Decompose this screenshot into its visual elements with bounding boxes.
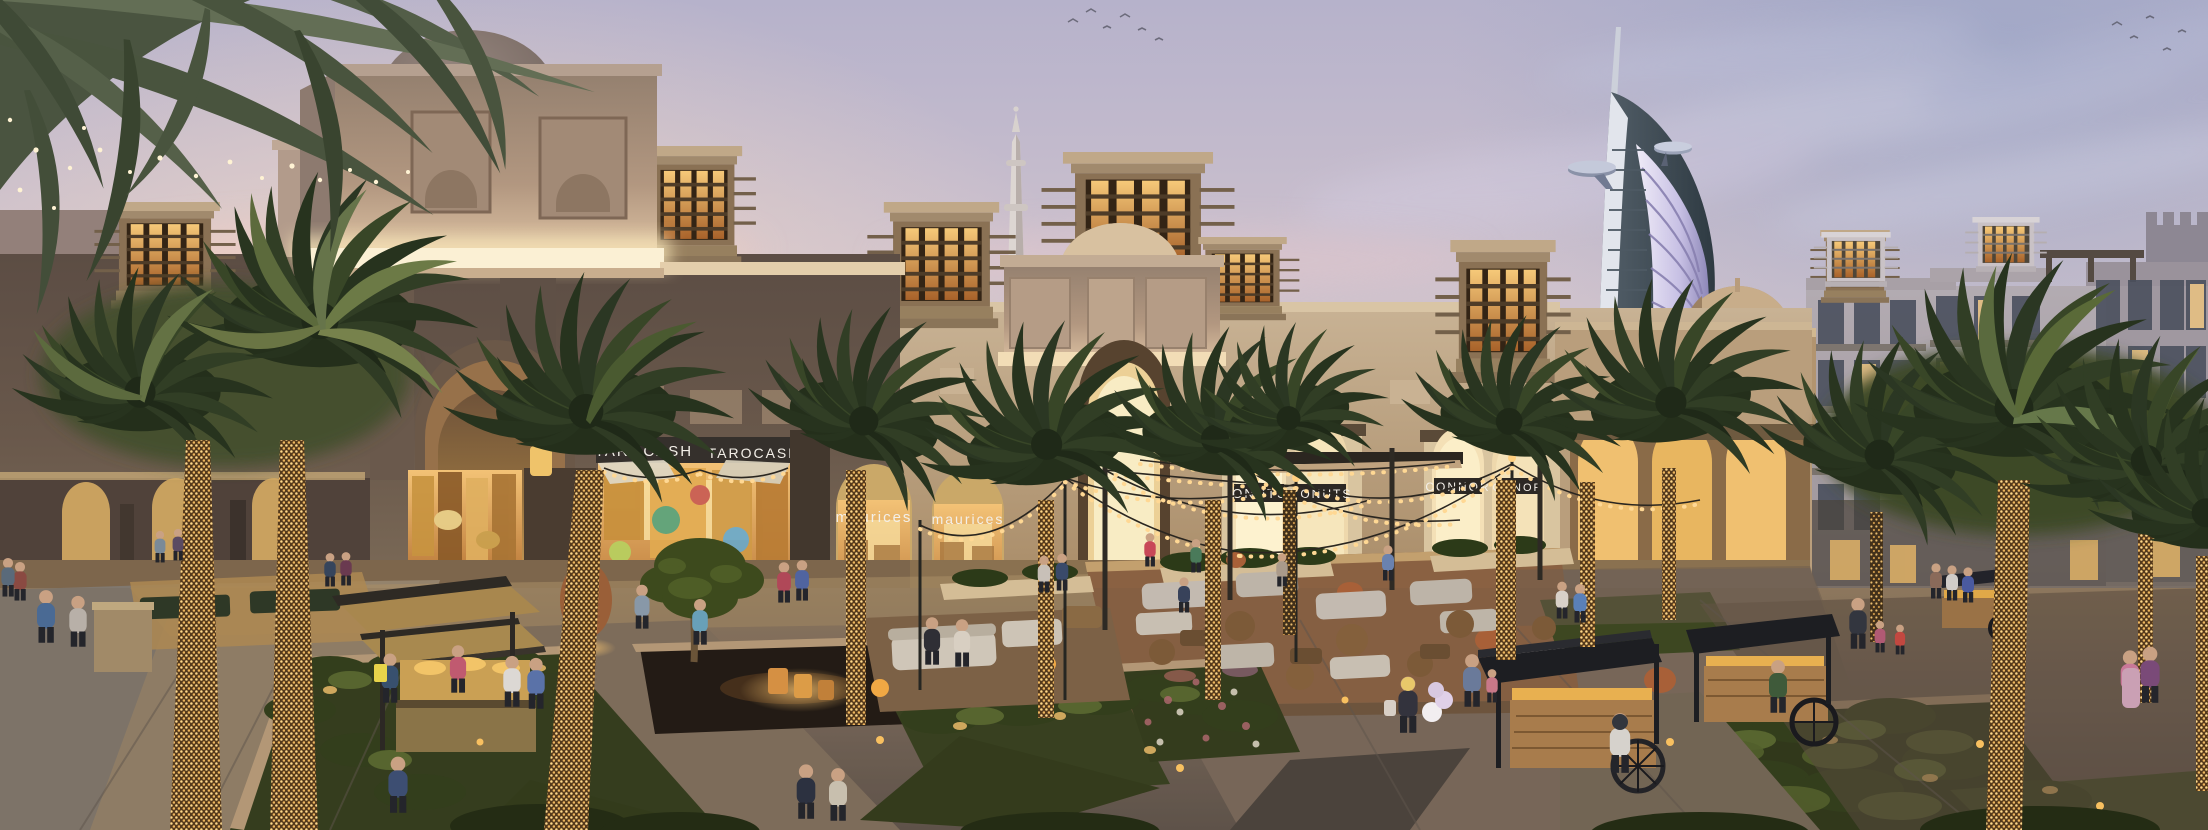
- svg-text:NONUTS: NONUTS: [1290, 487, 1353, 501]
- svg-text:TAROCASH: TAROCASH: [708, 445, 801, 461]
- svg-text:maurices: maurices: [932, 511, 1005, 527]
